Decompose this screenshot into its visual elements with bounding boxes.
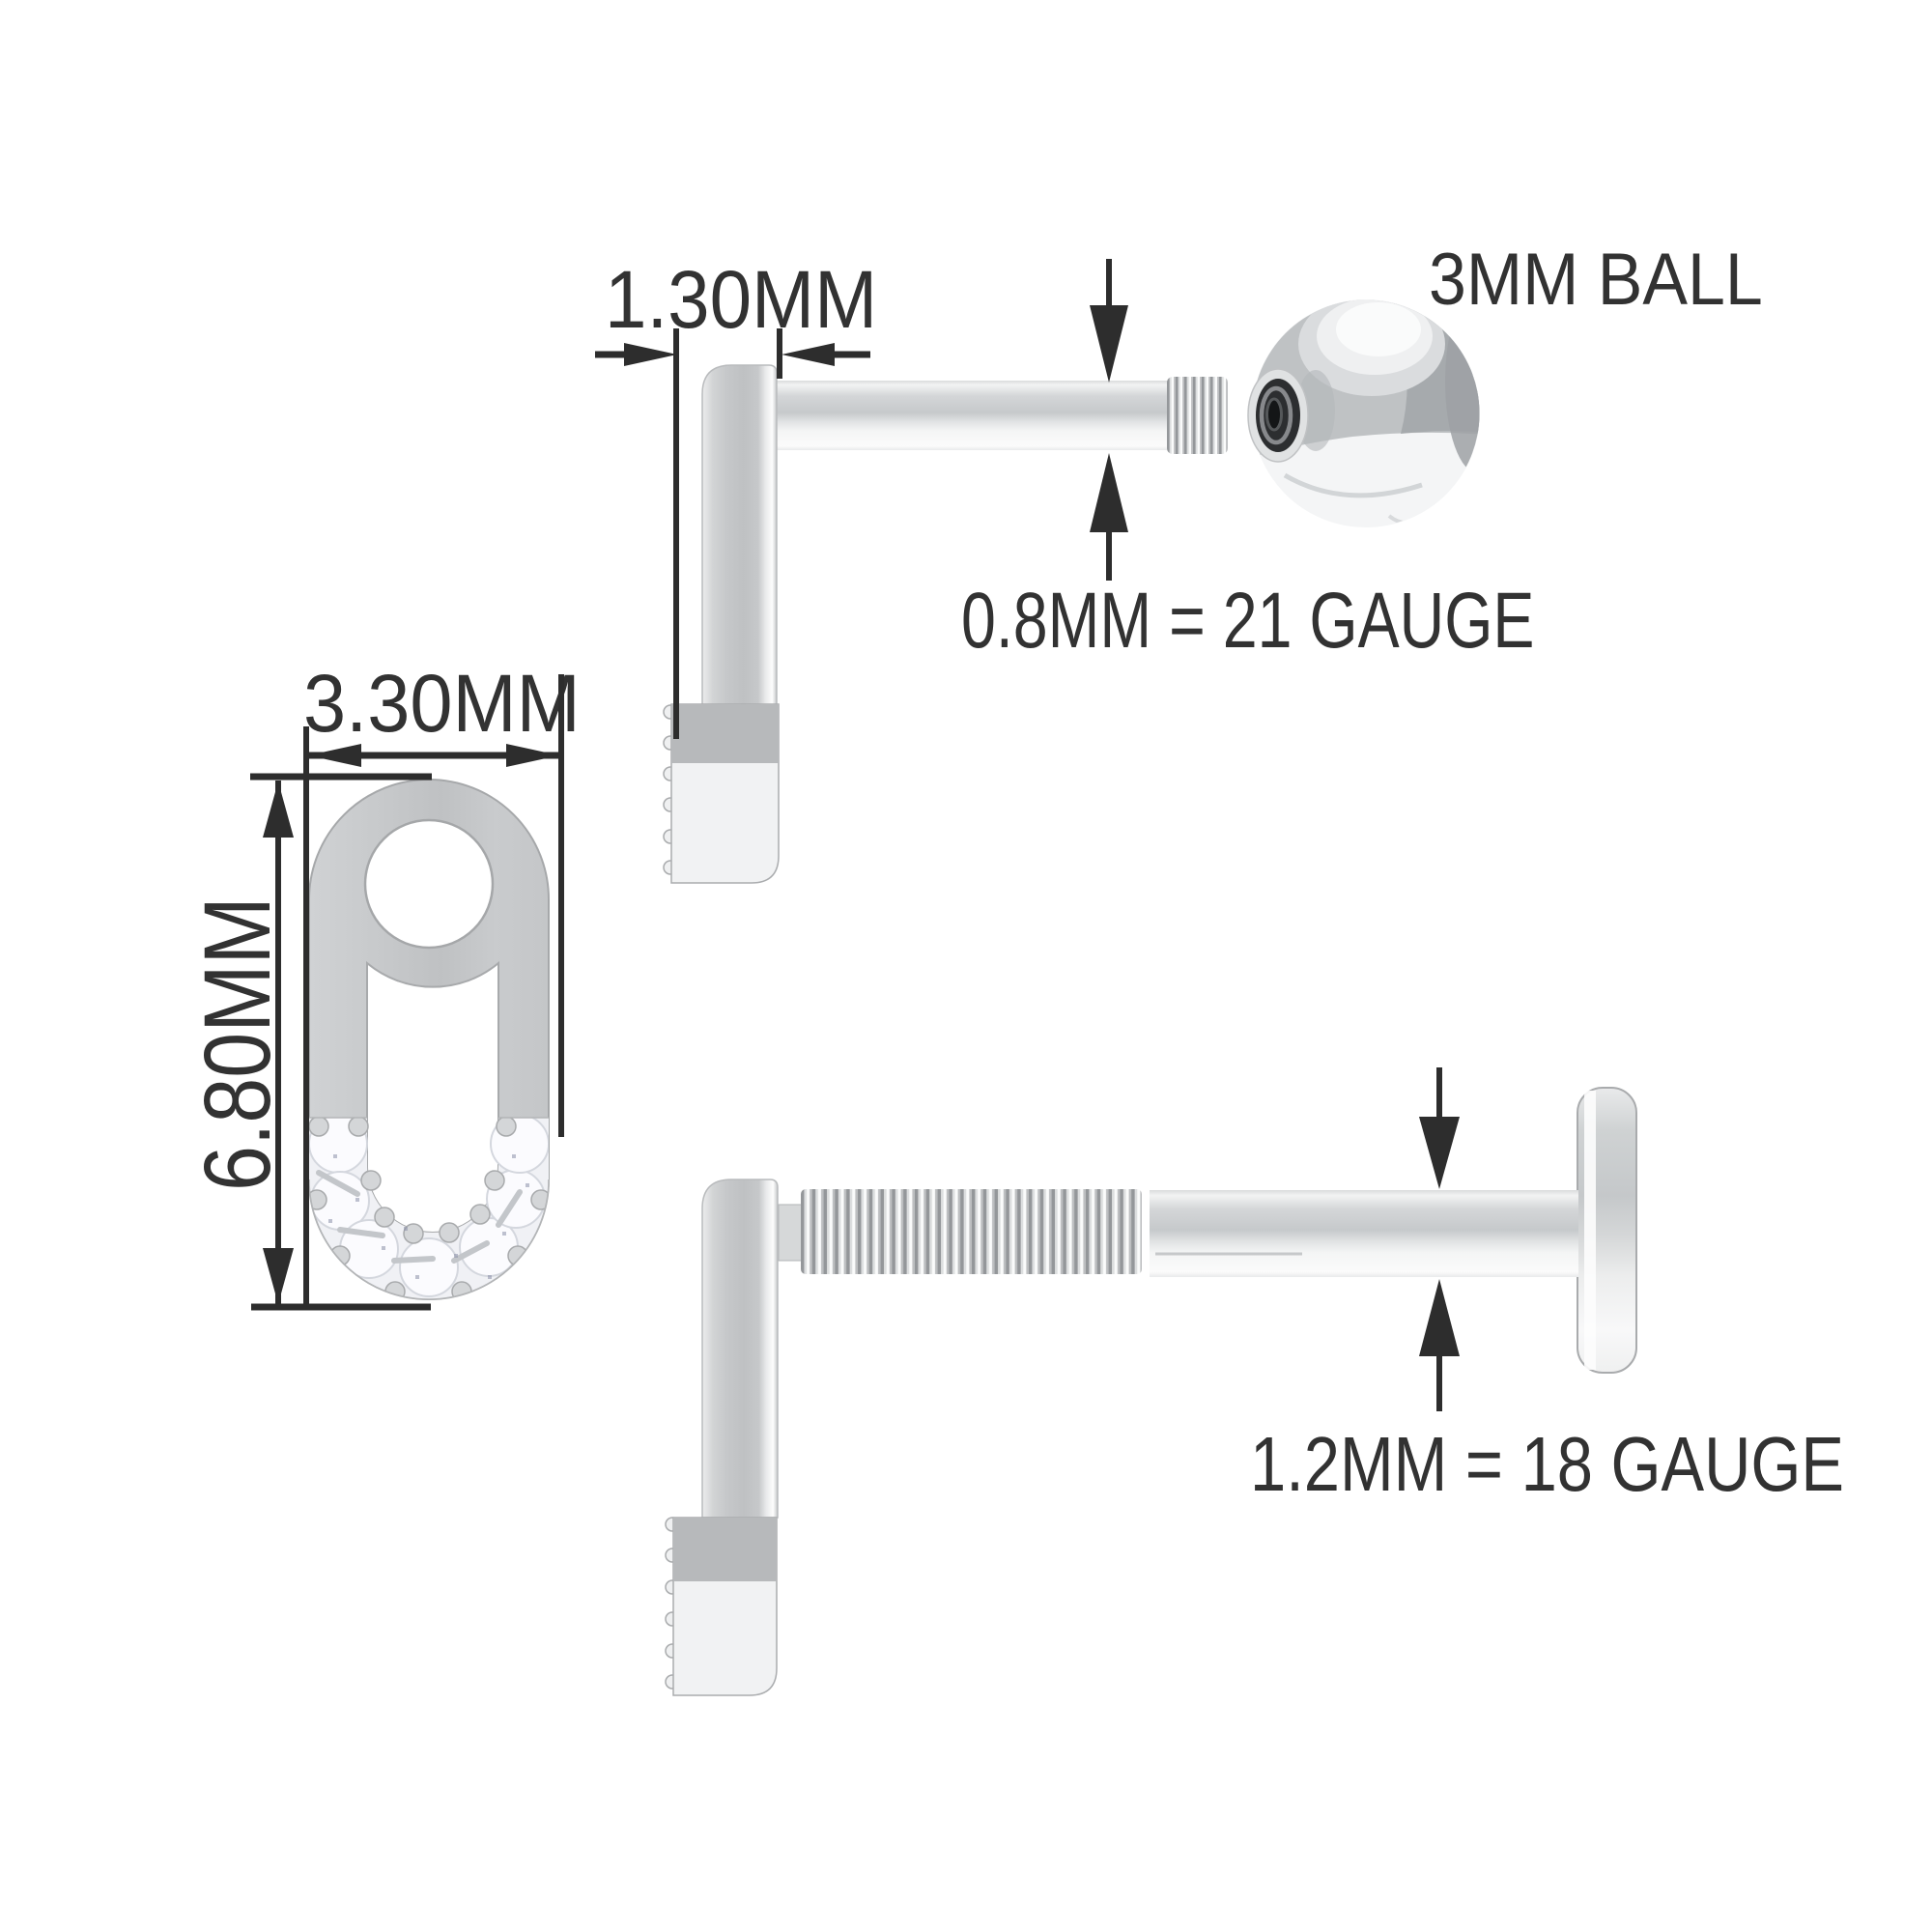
svg-text:1.2MM = 18 GAUGE: 1.2MM = 18 GAUGE (1250, 1420, 1844, 1507)
svg-text:0.8MM = 21 GAUGE: 0.8MM = 21 GAUGE (961, 576, 1534, 665)
svg-text:1.30MM: 1.30MM (605, 255, 877, 345)
svg-text:3MM BALL: 3MM BALL (1429, 239, 1763, 320)
svg-text:3.30MM: 3.30MM (303, 659, 581, 750)
svg-text:6.80MM: 6.80MM (186, 896, 291, 1191)
